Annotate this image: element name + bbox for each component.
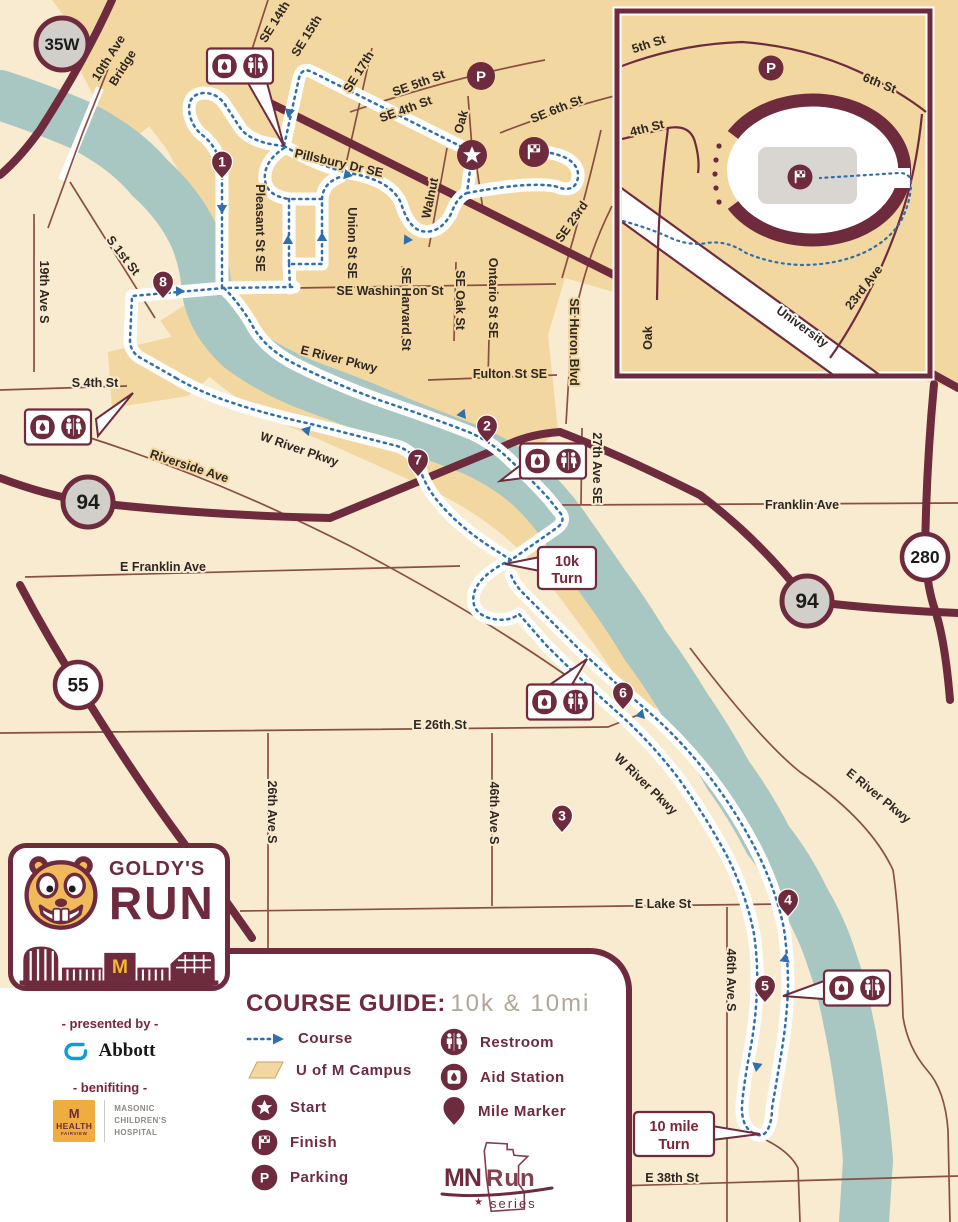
shield-280: 280 xyxy=(902,534,948,580)
abbott-a-icon xyxy=(64,1041,91,1062)
mhealth-masonic-logo: M HEALTH FAIRVIEW MASONIC CHILDREN'S HOS… xyxy=(0,1100,220,1142)
street-label: 46th Ave S xyxy=(487,782,501,845)
street-label: E 38th St xyxy=(645,1171,699,1185)
finish-icon xyxy=(251,1129,278,1156)
mile-marker-icon xyxy=(442,1096,466,1126)
stadium-inset: P 5th St 6th St 4th St Oak 23rd Ave Univ… xyxy=(604,11,930,403)
street-label: Union St SE xyxy=(345,207,359,279)
legend-item-mile-marker: Mile Marker xyxy=(442,1096,566,1126)
legend-item-start: Start xyxy=(251,1094,327,1121)
parking-icon: P xyxy=(467,62,495,90)
street-label: SE Harvard St xyxy=(399,267,413,351)
mhealth-icon: M HEALTH FAIRVIEW xyxy=(53,1100,95,1142)
sponsors-panel: - presented by - Abbott - benifiting - M… xyxy=(0,988,232,1222)
svg-text:10k: 10k xyxy=(555,554,580,570)
legend-item-course: Course xyxy=(246,1030,353,1047)
street-label: Ontario St SE xyxy=(486,258,500,339)
svg-text:Turn: Turn xyxy=(658,1137,689,1153)
street-label: E Franklin Ave xyxy=(120,560,206,574)
mn-run-series-logo: MN Run ★ series xyxy=(438,1140,568,1218)
street-label: 19th Ave S xyxy=(37,261,51,324)
svg-text:94: 94 xyxy=(76,491,100,514)
street-label: E 26th St xyxy=(413,718,467,732)
aid-restroom-icon xyxy=(527,685,593,720)
benefiting-label: - benifiting - xyxy=(0,1080,220,1095)
street-label: Fulton St SE xyxy=(473,367,547,381)
shield-35w: 35W xyxy=(36,18,88,70)
street-label: SE Oak St xyxy=(453,270,467,331)
svg-text:6: 6 xyxy=(619,685,627,701)
finish-icon xyxy=(519,137,549,167)
aid-restroom-icon xyxy=(824,971,890,1006)
course-guide-label: COURSE GUIDE: xyxy=(246,990,446,1017)
svg-text:P: P xyxy=(766,60,776,77)
shield-55: 55 xyxy=(55,662,101,708)
goldys-run-logo: GOLDY'S RUN M xyxy=(8,843,230,991)
gold-m-icon: M xyxy=(112,957,128,978)
svg-text:280: 280 xyxy=(910,547,939,567)
mnrun-series: series xyxy=(490,1196,537,1211)
masonic-line: CHILDREN'S xyxy=(114,1115,167,1127)
legend-item-campus: U of M Campus xyxy=(248,1060,412,1080)
svg-text:8: 8 xyxy=(159,274,167,290)
svg-text:94: 94 xyxy=(795,590,819,613)
course-guide-poster: 10k Turn 10 mile Turn P 1 2 3 4 5 6 7 8 … xyxy=(0,0,958,1222)
stadium-skyline-icon: M xyxy=(13,940,225,986)
street-label: SE Washington St xyxy=(336,284,444,298)
masonic-line: MASONIC xyxy=(114,1103,167,1115)
shield-94-east: 94 xyxy=(782,576,832,626)
aid-restroom-icon xyxy=(520,444,586,479)
svg-text:P: P xyxy=(476,69,486,86)
svg-text:1: 1 xyxy=(218,154,226,170)
mhealth-fairview: FAIRVIEW xyxy=(61,1131,87,1136)
svg-text:10 mile: 10 mile xyxy=(649,1119,698,1135)
svg-text:P: P xyxy=(260,1170,269,1186)
street-label: 46th Ave S xyxy=(724,949,738,1012)
restroom-icon xyxy=(440,1028,468,1056)
street-label: SE Huron Blvd xyxy=(567,298,581,386)
legend-item-aid-station: Aid Station xyxy=(440,1063,565,1091)
svg-text:2: 2 xyxy=(483,418,491,434)
legend-item-restroom: Restroom xyxy=(440,1028,554,1056)
mhealth-m: M xyxy=(69,1106,80,1121)
divider xyxy=(104,1100,105,1142)
parking-icon: P xyxy=(251,1164,278,1191)
course-guide-panel: COURSE GUIDE: 10k & 10mi Course U of M C… xyxy=(224,948,632,1222)
star-icon: ★ xyxy=(474,1197,483,1208)
campus-swatch-icon xyxy=(248,1060,284,1080)
start-icon xyxy=(251,1094,278,1121)
inset-finish-icon xyxy=(788,165,813,190)
svg-text:3: 3 xyxy=(558,808,566,824)
street-label: 27th Ave SE xyxy=(590,432,604,503)
street-label: E Lake St xyxy=(635,897,692,911)
abbott-logo: Abbott xyxy=(0,1040,220,1062)
svg-text:55: 55 xyxy=(67,676,89,697)
svg-text:7: 7 xyxy=(414,452,422,468)
svg-text:5: 5 xyxy=(761,978,769,994)
goldy-gopher-icon xyxy=(15,852,107,938)
inset-parking-icon: P xyxy=(759,56,784,81)
course-line-icon xyxy=(246,1031,286,1047)
masonic-line: HOSPITAL xyxy=(114,1127,167,1139)
shield-94-west: 94 xyxy=(63,477,113,527)
page-title: COURSE GUIDE: 10k & 10mi xyxy=(246,990,590,1018)
presented-by-label: - presented by - xyxy=(0,1016,220,1031)
aid-station-icon xyxy=(440,1063,468,1091)
aid-restroom-icon xyxy=(25,410,91,445)
distance-label: 10k & 10mi xyxy=(450,990,590,1017)
mhealth-health: HEALTH xyxy=(56,1121,92,1131)
street-label: Franklin Ave xyxy=(765,498,839,512)
street-label: Oak xyxy=(641,326,655,350)
street-label: Pleasant St SE xyxy=(253,184,267,272)
street-label: S 4th St xyxy=(72,376,119,390)
svg-text:35W: 35W xyxy=(45,35,81,54)
logo-title-main: RUN xyxy=(109,876,215,930)
svg-text:Turn: Turn xyxy=(551,571,582,587)
legend-item-parking: P Parking xyxy=(251,1164,349,1191)
legend-item-finish: Finish xyxy=(251,1129,337,1156)
aid-restroom-icon xyxy=(207,49,273,84)
abbott-wordmark: Abbott xyxy=(98,1040,155,1062)
street-label: 26th Ave S xyxy=(265,781,279,844)
svg-text:4: 4 xyxy=(784,892,792,908)
start-icon xyxy=(457,140,487,170)
